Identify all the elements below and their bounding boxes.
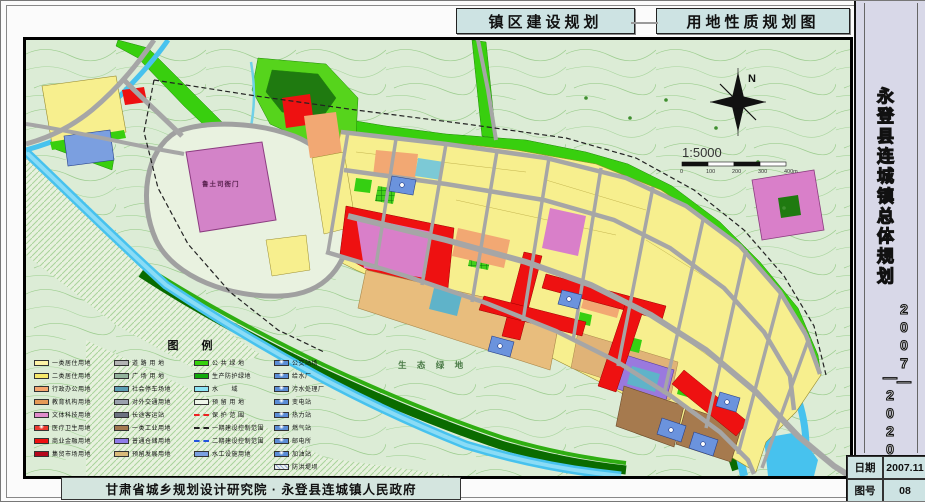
legend-label: 水 域 bbox=[212, 384, 238, 393]
legend-swatch bbox=[114, 373, 129, 379]
legend-item: ◉变电站 bbox=[274, 396, 354, 407]
legend-swatch bbox=[114, 425, 129, 431]
legend-item: 教育机构用地 bbox=[34, 396, 114, 407]
legend-label: 对外交通用地 bbox=[132, 397, 171, 406]
legend-label: 二期建设控制范围 bbox=[212, 436, 264, 445]
legend-label: 教育机构用地 bbox=[52, 397, 91, 406]
legend-item: 文体科技用地 bbox=[34, 409, 114, 420]
legend-item: 一类工业用地 bbox=[114, 422, 194, 433]
legend: 图 例 一类居住用地二类居住用地行政办公用地教育机构用地文体科技用地◉医疗卫生用… bbox=[34, 337, 356, 474]
legend-swatch bbox=[194, 373, 209, 379]
legend-item: 预留发展用地 bbox=[114, 448, 194, 459]
legend-label: 给水厂 bbox=[292, 371, 312, 380]
legend-swatch: ◉ bbox=[274, 399, 289, 405]
heritage-label: 鲁土司衙门 bbox=[201, 179, 240, 188]
legend-label: 水工设施用地 bbox=[212, 449, 251, 458]
legend-item: ◉热力站 bbox=[274, 409, 354, 420]
legend-swatch: ◉ bbox=[274, 425, 289, 431]
legend-label: 一期建设控制范围 bbox=[212, 423, 264, 432]
legend-column-3: 公 共 绿 地生产防护绿地水 域预 留 用 地保 护 范 围一期建设控制范围二期… bbox=[194, 357, 274, 474]
plan-sheet: 镇区建设规划 用地性质规划图 bbox=[0, 0, 925, 502]
legend-item: 广 场 用 地 bbox=[114, 370, 194, 381]
legend-label: 长途客运站 bbox=[132, 410, 165, 419]
old-town-admin bbox=[304, 112, 342, 158]
legend-swatch bbox=[114, 399, 129, 405]
legend-swatch bbox=[194, 399, 209, 405]
master-plan-title: 永登县连城镇总体规划 bbox=[875, 87, 892, 287]
drawing-title-sidebar: 永登县连城镇总体规划 2007— —2020 bbox=[854, 1, 925, 501]
sheet-number-label: 图号 bbox=[847, 479, 883, 502]
legend-item: 商业金融用地 bbox=[34, 435, 114, 446]
plan-years-end: —2020 bbox=[882, 369, 898, 459]
legend-label: 防洪堤坝 bbox=[292, 462, 318, 471]
legend-column-1: 一类居住用地二类居住用地行政办公用地教育机构用地文体科技用地◉医疗卫生用地商业金… bbox=[34, 357, 114, 474]
legend-swatch bbox=[114, 438, 129, 444]
legend-swatch bbox=[34, 451, 49, 457]
legend-label: 文体科技用地 bbox=[52, 410, 91, 419]
legend-item: 普通仓储用地 bbox=[114, 435, 194, 446]
plan-years-start: 2007— bbox=[896, 301, 912, 391]
legend-item: 预 留 用 地 bbox=[194, 396, 274, 407]
credit-bar: 甘肃省城乡规划设计研究院 · 永登县连城镇人民政府 bbox=[61, 477, 461, 500]
legend-swatch bbox=[194, 440, 209, 442]
legend-item: 二类居住用地 bbox=[34, 370, 114, 381]
legend-item: 保 护 范 围 bbox=[194, 409, 274, 420]
legend-label: 生产防护绿地 bbox=[212, 371, 251, 380]
legend-item: 道 路 用 地 bbox=[114, 357, 194, 368]
legend-item: ◉加油站 bbox=[274, 448, 354, 459]
legend-swatch bbox=[114, 451, 129, 457]
legend-swatch bbox=[274, 464, 289, 470]
legend-label: 社会停车场地 bbox=[132, 384, 171, 393]
legend-title: 图 例 bbox=[34, 337, 356, 353]
svg-text:1:5000: 1:5000 bbox=[682, 145, 722, 160]
legend-swatch: ◉ bbox=[274, 386, 289, 392]
legend-label: 医疗卫生用地 bbox=[52, 423, 91, 432]
legend-swatch bbox=[34, 360, 49, 366]
legend-label: 公交站场 bbox=[292, 358, 318, 367]
legend-swatch bbox=[34, 386, 49, 392]
legend-swatch bbox=[34, 438, 49, 444]
legend-label: 商业金融用地 bbox=[52, 436, 91, 445]
legend-column-4: ◉公交站场◉给水厂◉污水处理厂◉变电站◉热力站◉燃气站◉邮电所◉加油站防洪堤坝 bbox=[274, 357, 354, 474]
svg-text:100: 100 bbox=[706, 169, 715, 175]
legend-swatch bbox=[114, 412, 129, 418]
svg-text:0: 0 bbox=[680, 169, 683, 175]
legend-item: 一类居住用地 bbox=[34, 357, 114, 368]
legend-swatch: ◉ bbox=[34, 425, 49, 431]
svg-text:300: 300 bbox=[758, 169, 767, 175]
legend-label: 一类居住用地 bbox=[52, 358, 91, 367]
legend-label: 热力站 bbox=[292, 410, 312, 419]
sheet-number-value: 08 bbox=[883, 479, 925, 502]
legend-label: 二类居住用地 bbox=[52, 371, 91, 380]
svg-text:400m: 400m bbox=[784, 169, 798, 175]
legend-item: 二期建设控制范围 bbox=[194, 435, 274, 446]
legend-label: 污水处理厂 bbox=[292, 384, 325, 393]
legend-label: 道 路 用 地 bbox=[132, 358, 165, 367]
legend-column-2: 道 路 用 地广 场 用 地社会停车场地对外交通用地长途客运站一类工业用地普通仓… bbox=[114, 357, 194, 474]
legend-swatch bbox=[34, 373, 49, 379]
legend-label: 预 留 用 地 bbox=[212, 397, 245, 406]
date-label: 日期 bbox=[847, 456, 883, 479]
legend-swatch bbox=[194, 360, 209, 366]
plan-type-title: 镇区建设规划 bbox=[456, 8, 635, 34]
legend-swatch: ◉ bbox=[274, 373, 289, 379]
legend-label: 加油站 bbox=[292, 449, 312, 458]
legend-item: 对外交通用地 bbox=[114, 396, 194, 407]
legend-label: 广 场 用 地 bbox=[132, 371, 165, 380]
legend-swatch bbox=[194, 386, 209, 392]
legend-label: 公 共 绿 地 bbox=[212, 358, 245, 367]
date-value: 2007.11 bbox=[883, 456, 925, 479]
legend-label: 行政办公用地 bbox=[52, 384, 91, 393]
legend-item: 生产防护绿地 bbox=[194, 370, 274, 381]
legend-swatch bbox=[34, 412, 49, 418]
legend-swatch: ◉ bbox=[274, 360, 289, 366]
legend-label: 保 护 范 围 bbox=[212, 410, 245, 419]
legend-label: 燃气站 bbox=[292, 423, 312, 432]
legend-label: 变电站 bbox=[292, 397, 312, 406]
legend-label: 预留发展用地 bbox=[132, 449, 171, 458]
legend-swatch bbox=[194, 427, 209, 429]
legend-label: 邮电所 bbox=[292, 436, 312, 445]
legend-label: 普通仓储用地 bbox=[132, 436, 171, 445]
legend-item: ◉给水厂 bbox=[274, 370, 354, 381]
legend-item: 行政办公用地 bbox=[34, 383, 114, 394]
legend-item: 长途客运站 bbox=[114, 409, 194, 420]
legend-swatch bbox=[114, 386, 129, 392]
drawing-name-title: 用地性质规划图 bbox=[656, 8, 850, 34]
legend-item: 一期建设控制范围 bbox=[194, 422, 274, 433]
legend-swatch bbox=[34, 399, 49, 405]
legend-item: ◉医疗卫生用地 bbox=[34, 422, 114, 433]
title-connector-line bbox=[631, 22, 658, 24]
legend-item: ◉污水处理厂 bbox=[274, 383, 354, 394]
sheet-info-table: 日期 2007.11 图号 08 bbox=[846, 455, 925, 502]
legend-item: ◉邮电所 bbox=[274, 435, 354, 446]
svg-text:200: 200 bbox=[732, 169, 741, 175]
legend-item: 水工设施用地 bbox=[194, 448, 274, 459]
legend-item: 集贸市场用地 bbox=[34, 448, 114, 459]
legend-label: 一类工业用地 bbox=[132, 423, 171, 432]
legend-label: 集贸市场用地 bbox=[52, 449, 91, 458]
legend-item: 公 共 绿 地 bbox=[194, 357, 274, 368]
planning-map: N 1:5000 0100200300400m 鲁土司衙门 生 态 绿 地 图 … bbox=[23, 37, 853, 479]
legend-item: 社会停车场地 bbox=[114, 383, 194, 394]
legend-item: 水 域 bbox=[194, 383, 274, 394]
legend-swatch bbox=[114, 360, 129, 366]
legend-item: ◉燃气站 bbox=[274, 422, 354, 433]
eco-green-label: 生 态 绿 地 bbox=[398, 360, 467, 370]
svg-text:N: N bbox=[748, 73, 756, 85]
legend-item: ◉公交站场 bbox=[274, 357, 354, 368]
legend-swatch: ◉ bbox=[274, 412, 289, 418]
legend-swatch bbox=[194, 451, 209, 457]
legend-swatch bbox=[194, 414, 209, 416]
legend-swatch: ◉ bbox=[274, 451, 289, 457]
legend-swatch: ◉ bbox=[274, 438, 289, 444]
legend-item: 防洪堤坝 bbox=[274, 461, 354, 472]
